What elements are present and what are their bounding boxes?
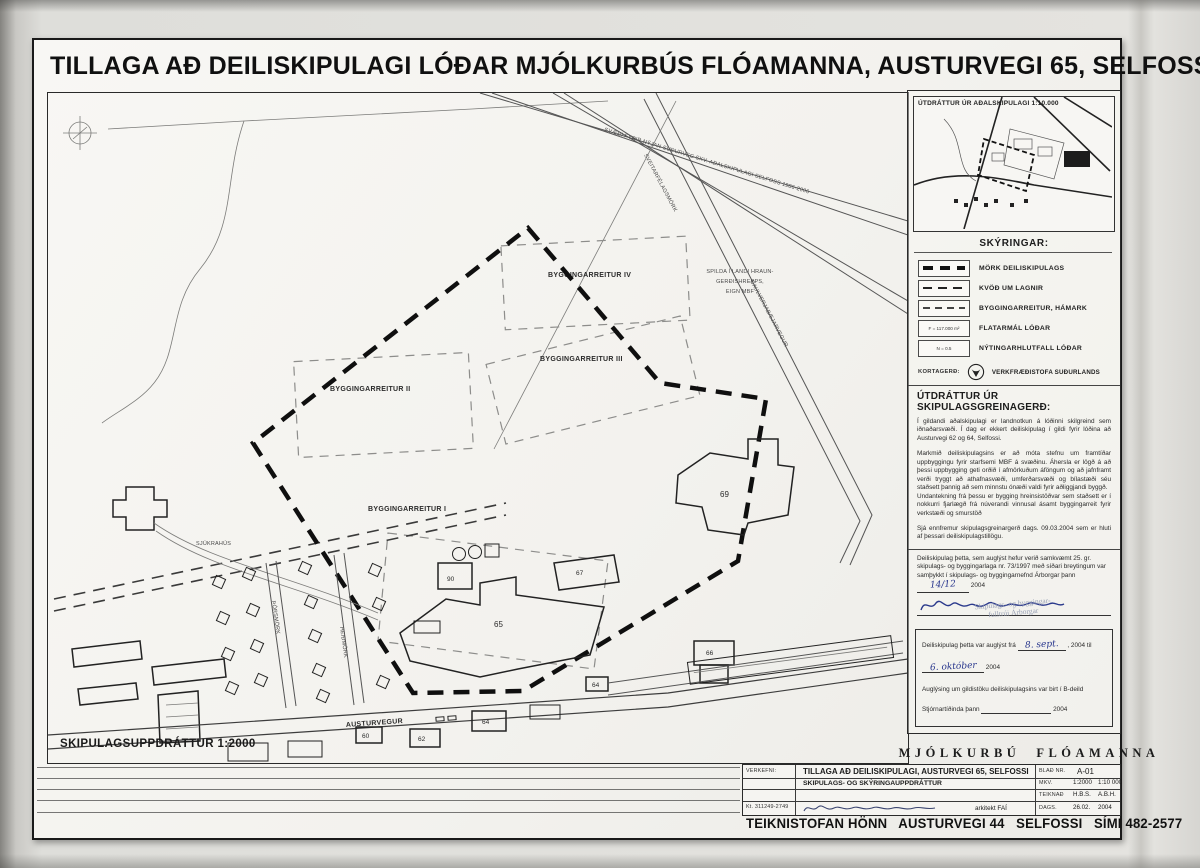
scanned-plan-sheet: TILLAGA AÐ DEILISKIPULAGI LÓÐAR MJÓLKURB… — [0, 0, 1200, 868]
lot-90-number: 90 — [447, 576, 455, 583]
legend-item-building-plot: BYGGINGARREITUR, HÁMARK — [918, 299, 1114, 317]
ruled-line — [37, 789, 740, 790]
lot-67-number: 67 — [576, 570, 584, 577]
project-title-line2: SKIPULAGS- OG SKÝRINGAUPPDRÁTTUR — [803, 780, 942, 787]
building-plot-symbol — [918, 300, 970, 317]
id-number: Kt. 311249-2749 — [746, 804, 788, 810]
scale-value-1: 1:2000 — [1073, 779, 1092, 786]
scanner-edge-shadow-top — [0, 0, 1200, 12]
plot-iii-label: BYGGINGARREITUR III — [540, 356, 623, 363]
ruled-line — [37, 812, 740, 813]
divided-road — [608, 636, 903, 695]
plot-i-label: BYGGINGARREITUR I — [368, 506, 446, 513]
site-plan-map: SVÆÐI FYRIR NÝJAN SUÐURVEG SKV. AÐALSKIP… — [47, 92, 909, 764]
municipal-boundary-label: SVEITARFÉLAGSMÖRK — [642, 153, 679, 214]
cartography-credit: KORTAGERÐ: VERKFRÆÐISTOFA SUÐURLANDS — [918, 363, 1114, 381]
report-paragraph-3: Undantekning frá þessu er bygging hreins… — [917, 493, 1111, 518]
report-extract-heading: ÚTDRÁTTUR ÚR SKIPULAGSGREINAGERÐ: — [917, 391, 1111, 413]
title-block-divider — [743, 778, 1120, 779]
lot-65-number: 65 — [494, 620, 503, 629]
heidmork-street-label: HEIÐMÖRK — [338, 626, 349, 658]
plot-ii-label: BYGGINGARREITUR II — [330, 386, 410, 393]
ruled-line — [37, 767, 740, 768]
report-paragraph-1: Í gildandi aðalskipulagi er landnotkun á… — [917, 418, 1111, 443]
lot-60-number: 60 — [362, 733, 370, 740]
ruled-line — [37, 800, 740, 801]
south-side-buildings: 60 62 64 — [228, 705, 560, 761]
utility-easement-symbol — [918, 280, 970, 297]
scanner-edge-shadow-bottom — [0, 854, 1200, 868]
plan-boundary-symbol — [918, 260, 970, 277]
scale-label: MKV. — [1039, 780, 1052, 786]
project-title-line1: TILLAGA AÐ DEILISKIPULAGI, AUSTURVEGI 65… — [803, 767, 1029, 776]
scale-value-2: 1:10 000 — [1098, 779, 1122, 786]
drawn-by-value-1: H.B.S. — [1073, 791, 1091, 798]
approval-text-b: Árborgar þann — [1035, 572, 1076, 579]
residential-houses — [212, 561, 389, 702]
legend-item-plot-ratio: N = 0.5 NÝTINGARHLUTFALL LÓÐAR — [918, 339, 1114, 357]
plot-ratio-symbol: N = 0.5 — [918, 340, 970, 357]
advert-period-line2: 6. október 2004 — [922, 662, 1000, 673]
hospital-building: SJÚKRAHÚS — [113, 487, 378, 620]
north-compass-icon — [63, 116, 97, 150]
report-paragraph-4: Sjá ennfremur skipulagsgreinargerð dags.… — [917, 525, 1111, 542]
section-divider — [908, 385, 1120, 386]
hospital-label: SJÚKRAHÚS — [196, 540, 231, 547]
date-value-1: 26.02. — [1073, 804, 1090, 811]
lot-area-symbol: F = 117.000 m² — [918, 320, 970, 337]
title-block-divider — [795, 765, 796, 815]
sheet-no-label: BLAÐ NR. — [1039, 768, 1065, 774]
legend-column: ÚTDRÁTTUR ÚR AÐALSKIPULAGI 1:10.000 — [907, 90, 1121, 734]
advert-period-line1: Deiliskipulag þetta var auglýst frá 8. s… — [922, 640, 1092, 651]
date-value-2: 2004 — [1098, 804, 1112, 811]
spilda-line1: SPILDA Í LANDI HRAUN- — [706, 268, 773, 275]
title-block-divider — [743, 789, 1120, 790]
title-block-divider — [1035, 765, 1036, 815]
approval-date-handwritten: 14/12 — [917, 580, 969, 593]
map-scale-label: SKIPULAGSUPPDRÁTTUR 1:2000 — [60, 737, 256, 750]
spilda-annotation: SPILDA Í LANDI HRAUN- GERÐISHREPPS, EIGN… — [706, 268, 773, 295]
inset-map-title: ÚTDRÁTTUR ÚR AÐALSKIPULAGI 1:10.000 — [918, 100, 1059, 107]
gaulverjabaejarvegur-road: GAULVERJABÆJARVEGUR — [644, 93, 872, 565]
lot-62-number: 62 — [418, 736, 426, 743]
ruled-line — [37, 778, 740, 779]
report-paragraph-2: Markmið deiliskipulagsins er að móta ste… — [917, 450, 1111, 492]
legend-heading: SKÝRINGAR: — [908, 238, 1120, 249]
gazette-date-line: Stjórnartíðinda þann 2004 — [922, 706, 1067, 714]
lot-64-number: 64 — [482, 719, 490, 726]
lot-64b-number: 64 — [592, 682, 600, 689]
engineering-firm-logo-icon — [967, 363, 985, 381]
project-label: VERKEFNI: — [746, 768, 776, 774]
thorsmork-street-label: ÞÓRSMÖRK — [270, 600, 282, 634]
document-title: TILLAGA AÐ DEILISKIPULAGI LÓÐAR MJÓLKURB… — [50, 52, 1110, 81]
sheet-no-value: A-01 — [1077, 767, 1094, 776]
planning-report-extract: ÚTDRÁTTUR ÚR SKIPULAGSGREINAGERÐ: Í gild… — [917, 391, 1111, 542]
spilda-line2: GERÐISHREPPS, — [716, 279, 764, 285]
architect-signature — [801, 802, 941, 814]
brand-name-right: FLÓAMANNA — [1036, 746, 1159, 761]
legend-divider — [914, 252, 1112, 253]
lot-66-number: 66 — [706, 650, 714, 657]
drawn-by-label: TEIKNAÐ — [1039, 792, 1064, 798]
legend-item-utility-easement: KVÖÐ UM LAGNIR — [918, 279, 1114, 297]
brand-name-left: MJÓLKURBÚ — [899, 746, 1021, 761]
inset-map-drawing — [914, 97, 1112, 229]
drawing-office-footer: TEIKNISTOFAN HÖNN AUSTURVEGI 44 SELFOSSI… — [746, 816, 1112, 831]
legend-item-plan-boundary: MÖRK DEILISKIPULAGS — [918, 259, 1114, 277]
approval-year: 2004 — [971, 582, 985, 589]
drawing-sheet: TILLAGA AÐ DEILISKIPULAGI LÓÐAR MJÓLKURB… — [32, 38, 1122, 840]
gazette-date-blank — [981, 706, 1051, 714]
legend-item-lot-area: F = 117.000 m² FLATARMÁL LÓÐAR — [918, 319, 1114, 337]
date-label: DAGS. — [1039, 805, 1057, 811]
architect-title: arkitekt FAÍ — [975, 805, 1007, 812]
section-divider-2 — [908, 549, 1120, 550]
approval-text: Deiliskipulag þetta, sem auglýst hefur v… — [917, 555, 1106, 579]
utility-easement-lines — [54, 503, 506, 611]
advert-end-date: 6. október — [922, 662, 984, 673]
gazette-notice-text: Auglýsing um gildistöku deiliskipulagsin… — [922, 686, 1083, 693]
title-block: VERKEFNI: TILLAGA AÐ DEILISKIPULAGI, AUS… — [742, 764, 1121, 816]
advertisement-period-box: Deiliskipulag þetta var auglýst frá 8. s… — [915, 629, 1113, 727]
overview-inset-map: ÚTDRÁTTUR ÚR AÐALSKIPULAGI 1:10.000 — [913, 96, 1115, 232]
future-south-road: SVÆÐI FYRIR NÝJAN SUÐURVEG SKV. AÐALSKIP… — [480, 93, 908, 314]
lot-69-number: 69 — [720, 490, 729, 499]
spilda-line3: EIGN MBF — [726, 289, 755, 295]
plot-iv-label: BYGGINGARREITUR IV — [548, 272, 631, 279]
terrain-lines — [102, 101, 608, 423]
advert-start-date: 8. sept. — [1018, 640, 1066, 651]
drawn-by-value-2: A.B.H. — [1098, 791, 1116, 798]
site-plan-drawing: SVÆÐI FYRIR NÝJAN SUÐURVEG SKV. AÐALSKIP… — [48, 93, 908, 763]
